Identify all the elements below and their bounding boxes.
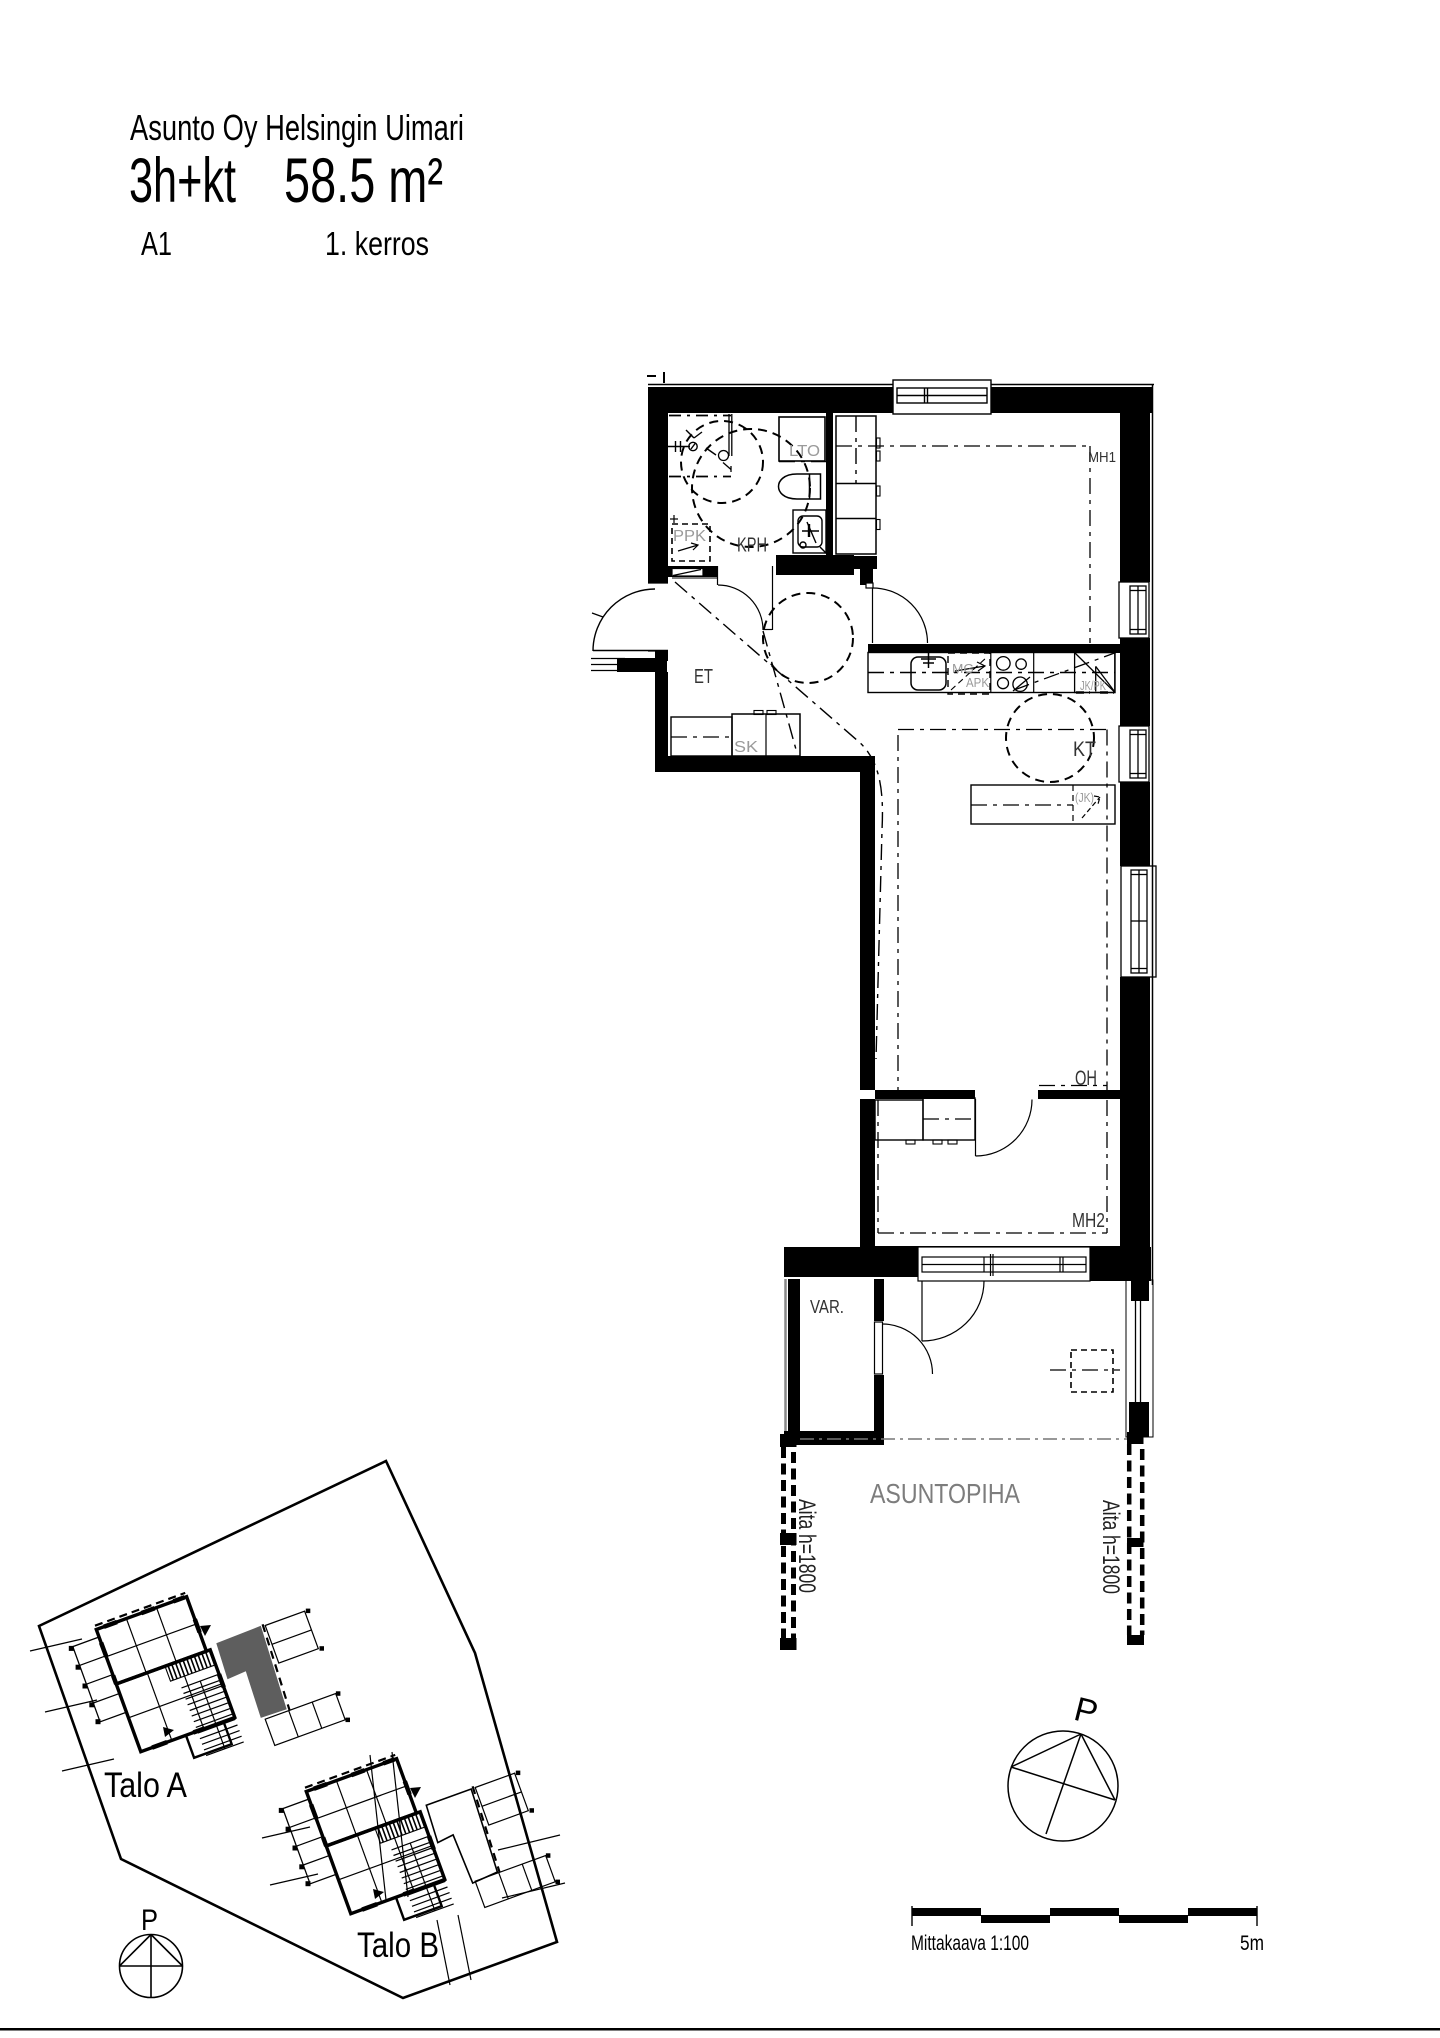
svg-text:MH2: MH2 xyxy=(1072,1210,1105,1232)
svg-text:KT: KT xyxy=(1073,738,1096,761)
svg-text:Talo B: Talo B xyxy=(357,1926,439,1965)
svg-text:MG: MG xyxy=(952,661,974,676)
svg-text:5m: 5m xyxy=(1240,1932,1264,1955)
svg-text:VAR.: VAR. xyxy=(810,1297,844,1317)
svg-text:MH1: MH1 xyxy=(1088,449,1116,466)
svg-text:Mittakaava 1:100: Mittakaava 1:100 xyxy=(911,1932,1029,1955)
svg-text:P: P xyxy=(141,1904,158,1937)
svg-text:PPK: PPK xyxy=(673,528,706,545)
svg-text:KPH: KPH xyxy=(737,535,767,557)
svg-text:JK/PK: JK/PK xyxy=(1080,679,1106,693)
svg-text:3h+kt: 3h+kt xyxy=(129,146,236,216)
svg-text:SK: SK xyxy=(734,739,758,756)
svg-text:58.5 m²: 58.5 m² xyxy=(284,146,443,216)
svg-text:ET: ET xyxy=(694,666,713,688)
svg-text:Asunto Oy Helsingin Uimari: Asunto Oy Helsingin Uimari xyxy=(130,107,464,148)
svg-text:Aita h=1800: Aita h=1800 xyxy=(1097,1500,1124,1594)
svg-text:LTO: LTO xyxy=(789,443,820,460)
svg-text:OH: OH xyxy=(1075,1067,1097,1090)
svg-text:A1: A1 xyxy=(141,225,172,262)
svg-text:Talo A: Talo A xyxy=(104,1766,188,1805)
svg-text:APK: APK xyxy=(966,675,989,690)
svg-text:(JK): (JK) xyxy=(1075,790,1094,805)
svg-text:ASUNTOPIHA: ASUNTOPIHA xyxy=(870,1478,1020,1509)
svg-text:Aita h=1800: Aita h=1800 xyxy=(793,1499,820,1593)
svg-text:1. kerros: 1. kerros xyxy=(325,225,429,262)
